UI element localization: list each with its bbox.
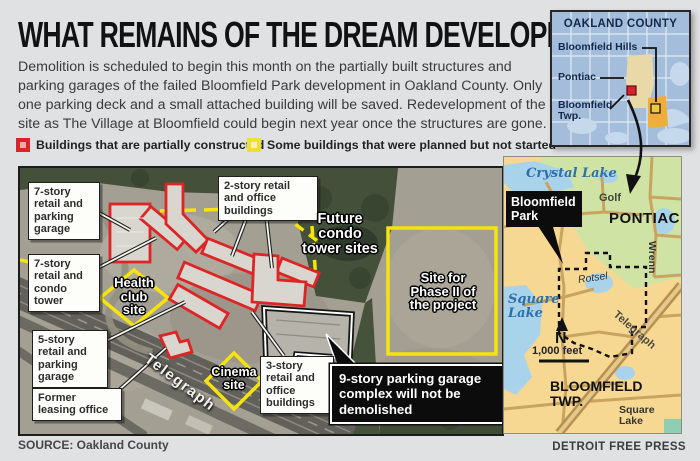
intro-paragraph: Demolition is scheduled to begin this mo…	[18, 58, 556, 134]
callout-7story-condo: 7-story retail and condo tower	[28, 254, 100, 312]
callout-3story-offices: 3-story retail and office buildings	[260, 356, 334, 414]
label-health-club-site: Health club site	[108, 276, 160, 317]
label-future-condo-sites: Future condo tower sites	[300, 212, 380, 258]
legend-item-partially-constructed: Buildings that are partially constructed	[16, 138, 264, 152]
publisher-credit: DETROIT FREE PRESS	[552, 441, 686, 453]
square-lake-label: Square Lake	[508, 293, 558, 320]
legend-label: Buildings that are partially constructed	[36, 138, 264, 152]
legend-item-planned-not-started: Some buildings that were planned but not…	[247, 138, 556, 152]
inset-to-map-arrow-icon	[600, 96, 670, 206]
square-lake-road-label: Square Lake	[619, 405, 681, 427]
wrenn-road-label: Wrenn	[646, 241, 657, 273]
label-phase2-site: Site for Phase II of the project	[408, 271, 478, 312]
label-9story-garage-saved: 9-story parking garage complex will not …	[330, 364, 504, 424]
pontiac-label: PONTIAC	[609, 211, 680, 227]
inset-map-title: OAKLAND COUNTY	[552, 18, 689, 30]
callout-5story-parking: 5-story retail and parking garage	[32, 330, 108, 388]
aerial-photo-map: 7-story retail and parking garage 7-stor…	[18, 166, 504, 436]
source-credit: SOURCE: Oakland County	[18, 438, 169, 452]
callout-7story-parking: 7-story retail and parking garage	[28, 182, 100, 240]
callout-former-leasing: Former leasing office	[32, 388, 122, 421]
bloomfield-park-marker	[627, 86, 636, 95]
red-legend-swatch-icon	[16, 138, 30, 152]
inset-label-pontiac: Pontiac	[558, 72, 596, 83]
label-cinema-site: Cinema site	[210, 366, 258, 392]
infographic-canvas: WHAT REMAINS OF THE DREAM DEVELOPMENT De…	[0, 0, 700, 461]
bloomfield-park-label: Bloomfield Park	[506, 191, 582, 227]
page-title: WHAT REMAINS OF THE DREAM DEVELOPMENT	[18, 14, 619, 56]
scale-label: 1,000 feet	[532, 346, 582, 358]
legend-label: Some buildings that were planned but not…	[267, 138, 556, 152]
yellow-legend-swatch-icon	[247, 138, 261, 152]
inset-label-bloomfield-hills: Bloomfield Hills	[558, 42, 637, 53]
